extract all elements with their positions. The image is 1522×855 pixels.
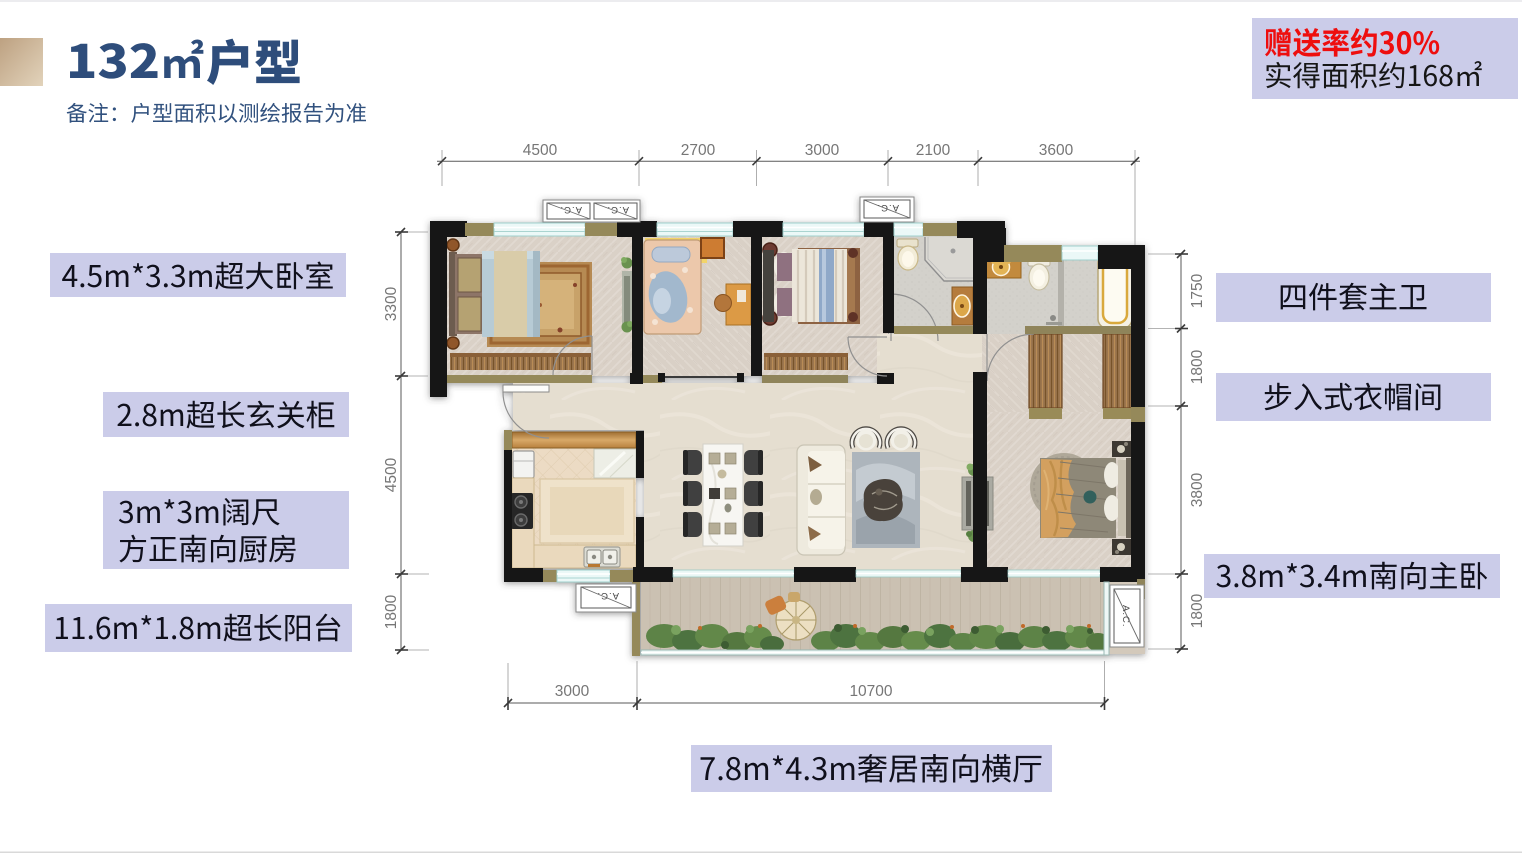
svg-text:4500: 4500: [523, 142, 558, 159]
svg-text:3000: 3000: [805, 142, 840, 159]
svg-text:1800: 1800: [383, 594, 400, 629]
svg-text:3000: 3000: [555, 683, 590, 700]
svg-text:1750: 1750: [1189, 273, 1206, 308]
svg-text:1800: 1800: [1189, 593, 1206, 628]
svg-text:3600: 3600: [1039, 142, 1074, 159]
svg-text:2700: 2700: [681, 142, 716, 159]
svg-text:3800: 3800: [1189, 472, 1206, 507]
svg-text:A.C.: A.C.: [877, 202, 899, 213]
svg-text:A.C.: A.C.: [560, 204, 582, 215]
svg-text:A.C.: A.C.: [597, 590, 619, 601]
svg-text:4500: 4500: [383, 457, 400, 492]
svg-text:1800: 1800: [1189, 349, 1206, 384]
svg-text:A.C.: A.C.: [1120, 605, 1131, 627]
svg-text:A.C.: A.C.: [607, 204, 629, 215]
svg-text:3300: 3300: [383, 286, 400, 321]
svg-text:2100: 2100: [916, 142, 951, 159]
svg-text:10700: 10700: [849, 683, 892, 700]
